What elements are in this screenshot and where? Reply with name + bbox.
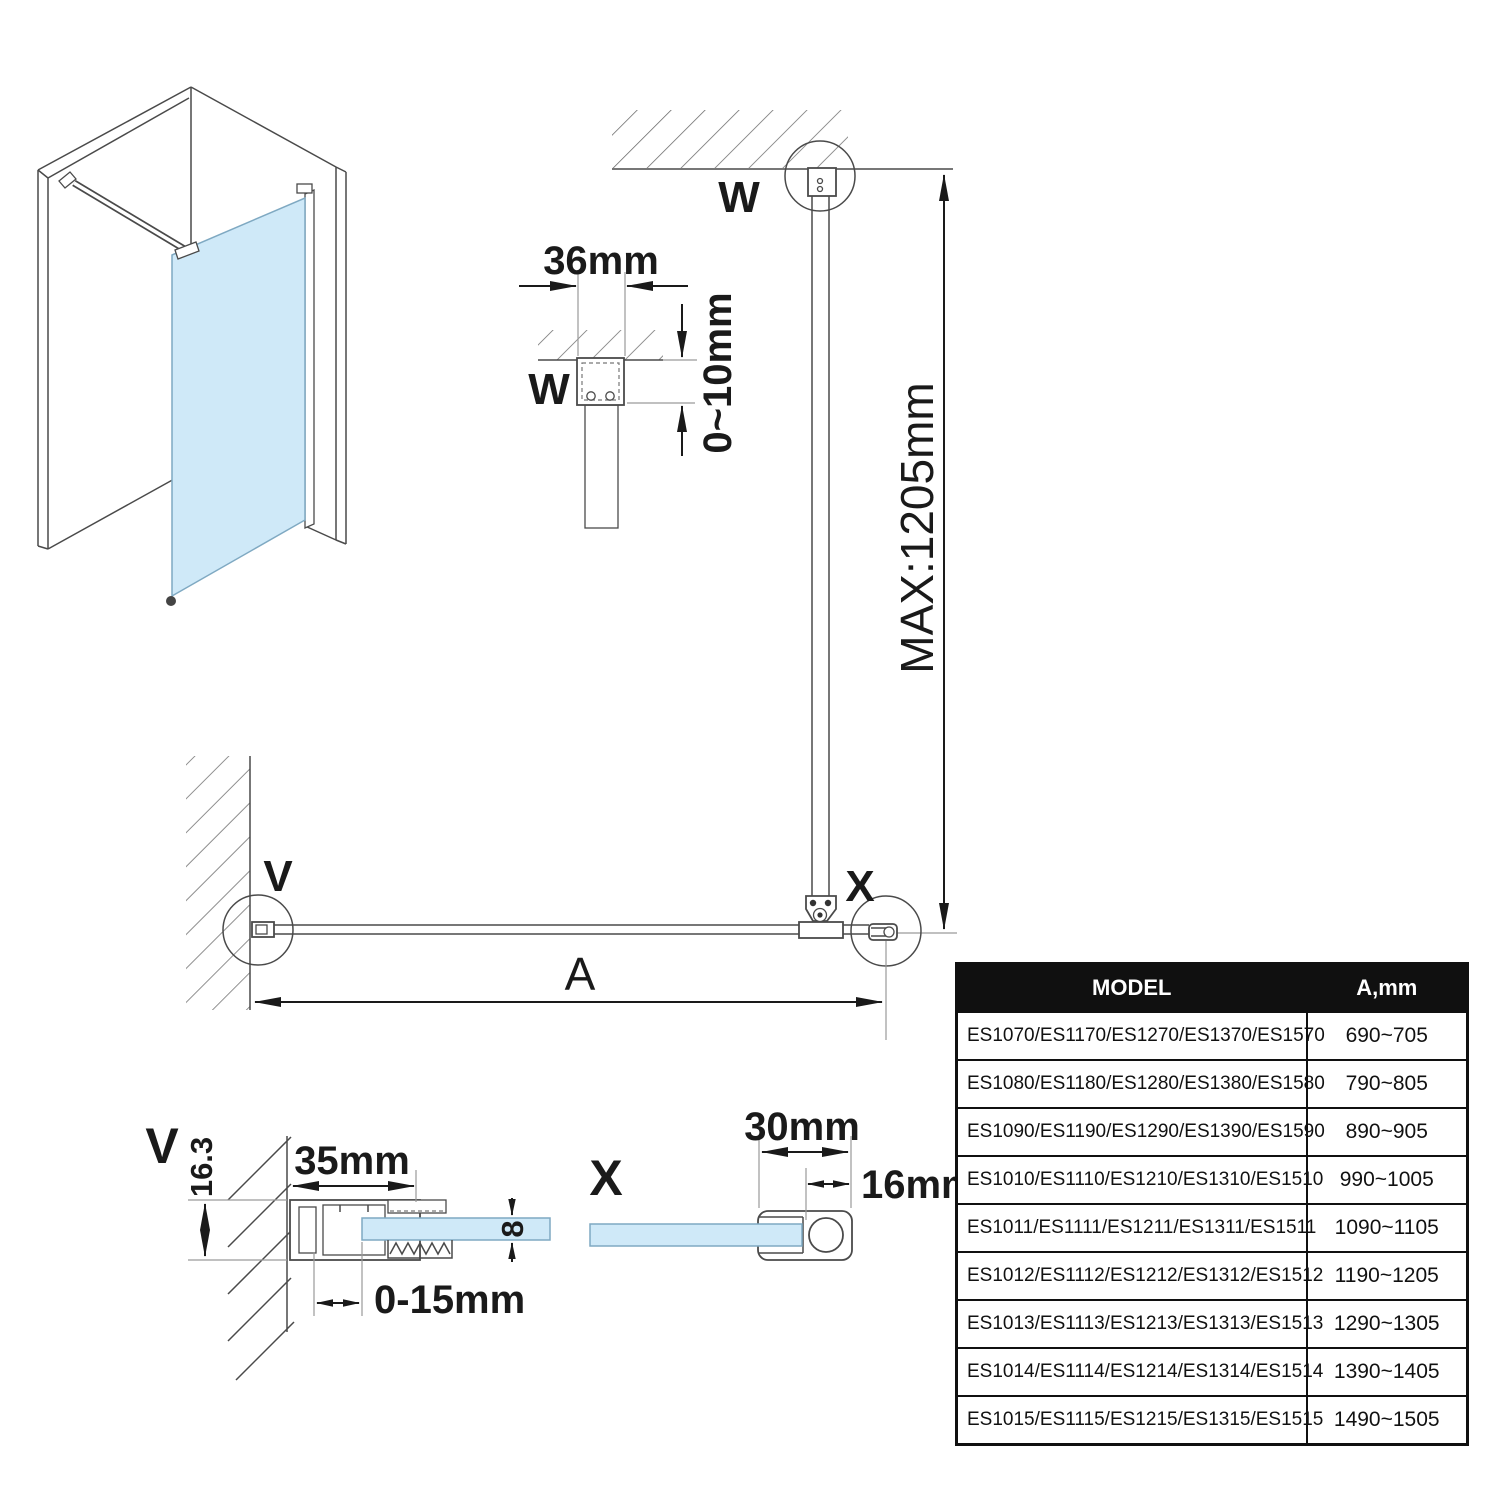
detail-x-label: X <box>589 1150 622 1206</box>
iso-left-wall <box>38 87 191 549</box>
screw-icon <box>587 392 595 400</box>
table-row: ES1070/ES1170/ES1270/ES1370/ES1570 690~7… <box>957 1012 1468 1060</box>
detail-v-clamp-lip <box>388 1200 446 1213</box>
detail-x-glass <box>590 1224 802 1246</box>
dim-bracket-width: 36mm <box>543 239 659 283</box>
pivot-pin <box>817 912 822 917</box>
model-names: ES1070/ES1170/ES1270/ES1370/ES1570 <box>957 1012 1307 1060</box>
a-range: 1090~1105 <box>1307 1204 1468 1252</box>
detail-v-label: V <box>145 1118 179 1174</box>
dim-glass-thickness: 8 <box>495 1220 530 1237</box>
model-names: ES1015/ES1115/ES1215/ES1315/ES1515 <box>957 1396 1307 1445</box>
detail-w-bar <box>585 405 618 528</box>
plan-end-clamp <box>869 924 897 940</box>
table-row: ES1011/ES1111/ES1211/ES1311/ES1511 1090~… <box>957 1204 1468 1252</box>
detail-x-bar-socket <box>809 1218 843 1252</box>
elevation-view: W MAX:1205mm <box>612 110 957 933</box>
table-row: ES1013/ES1113/ES1213/ES1313/ES1513 1290~… <box>957 1300 1468 1348</box>
table-row: ES1012/ES1112/ES1212/ES1312/ES1512 1190~… <box>957 1252 1468 1300</box>
plan-bar-clamp <box>799 922 843 938</box>
table-row: ES1010/ES1110/ES1210/ES1310/ES1510 990~1… <box>957 1156 1468 1204</box>
detail-v: 16.3 35mm 0-15mm 8 V <box>145 1118 550 1380</box>
screw-icon <box>818 179 823 184</box>
support-bar <box>812 196 829 896</box>
model-names: ES1080/ES1180/ES1280/ES1380/ES1580 <box>957 1060 1307 1108</box>
plan-x-label: X <box>845 862 874 911</box>
detail-w: 36mm 0~10mm W <box>519 239 740 528</box>
model-names: ES1090/ES1190/ES1290/ES1390/ES1590 <box>957 1108 1307 1156</box>
screw-icon <box>825 900 831 906</box>
table-row: ES1014/ES1114/ES1214/ES1314/ES1514 1390~… <box>957 1348 1468 1396</box>
detail-v-wall-hatch <box>228 1137 294 1380</box>
dim-ceiling-gap: 0~10mm <box>696 292 740 453</box>
model-names: ES1010/ES1110/ES1210/ES1310/ES1510 <box>957 1156 1307 1204</box>
dim-max-bar-length: MAX:1205mm <box>891 382 943 673</box>
detail-x: 30mm 16mm X <box>589 1105 976 1260</box>
model-names: ES1014/ES1114/ES1214/ES1314/ES1514 <box>957 1348 1307 1396</box>
shower-panel-installation-diagram: 36mm 0~10mm W W MAX:1205mm <box>0 0 1500 1500</box>
dim-profile-width: 35mm <box>294 1139 410 1183</box>
detail-w-label: W <box>528 365 570 414</box>
iso-floor-foot <box>166 596 176 606</box>
table-header-a: A,mm <box>1307 964 1468 1013</box>
iso-glass-panel <box>172 198 305 596</box>
iso-wall-profile <box>305 190 314 528</box>
a-range: 990~1005 <box>1307 1156 1468 1204</box>
a-range: 1390~1405 <box>1307 1348 1468 1396</box>
screw-icon <box>810 900 816 906</box>
model-names: ES1012/ES1112/ES1212/ES1312/ES1512 <box>957 1252 1307 1300</box>
a-range: 890~905 <box>1307 1108 1468 1156</box>
table-header-row: MODEL A,mm <box>957 964 1468 1013</box>
detail-w-bracket <box>577 358 624 405</box>
dim-end-width: 30mm <box>744 1105 860 1149</box>
screw-icon <box>606 392 614 400</box>
screw-icon <box>818 187 823 192</box>
iso-profile-cap <box>297 184 312 193</box>
a-range: 1290~1305 <box>1307 1300 1468 1348</box>
a-range: 690~705 <box>1307 1012 1468 1060</box>
a-range: 790~805 <box>1307 1060 1468 1108</box>
dim-adjust-range: 0-15mm <box>374 1278 525 1322</box>
dim-profile-depth: 16.3 <box>184 1137 219 1197</box>
isometric-view <box>38 87 346 606</box>
a-range: 1490~1505 <box>1307 1396 1468 1445</box>
plan-v-label: V <box>263 852 293 901</box>
ceiling-hatch-w <box>538 330 663 360</box>
elevation-w-label: W <box>718 173 760 222</box>
table-row: ES1090/ES1190/ES1290/ES1390/ES1590 890~9… <box>957 1108 1468 1156</box>
ceiling-hatch <box>612 110 848 168</box>
iso-support-bar <box>59 172 199 259</box>
model-size-table: MODEL A,mm ES1070/ES1170/ES1270/ES1370/E… <box>955 962 1469 1446</box>
table-row: ES1080/ES1180/ES1280/ES1380/ES1580 790~8… <box>957 1060 1468 1108</box>
model-names: ES1013/ES1113/ES1213/ES1313/ES1513 <box>957 1300 1307 1348</box>
detail-v-profile-slot <box>299 1207 316 1253</box>
plan-glass <box>256 925 869 934</box>
wall-hatch <box>186 756 250 1010</box>
model-names: ES1011/ES1111/ES1211/ES1311/ES1511 <box>957 1204 1307 1252</box>
table-row: ES1015/ES1115/ES1215/ES1315/ES1515 1490~… <box>957 1396 1468 1445</box>
table-header-model: MODEL <box>957 964 1307 1013</box>
dim-width-a: A <box>565 948 596 1000</box>
a-range: 1190~1205 <box>1307 1252 1468 1300</box>
plan-wall-profile-inner <box>256 925 267 934</box>
